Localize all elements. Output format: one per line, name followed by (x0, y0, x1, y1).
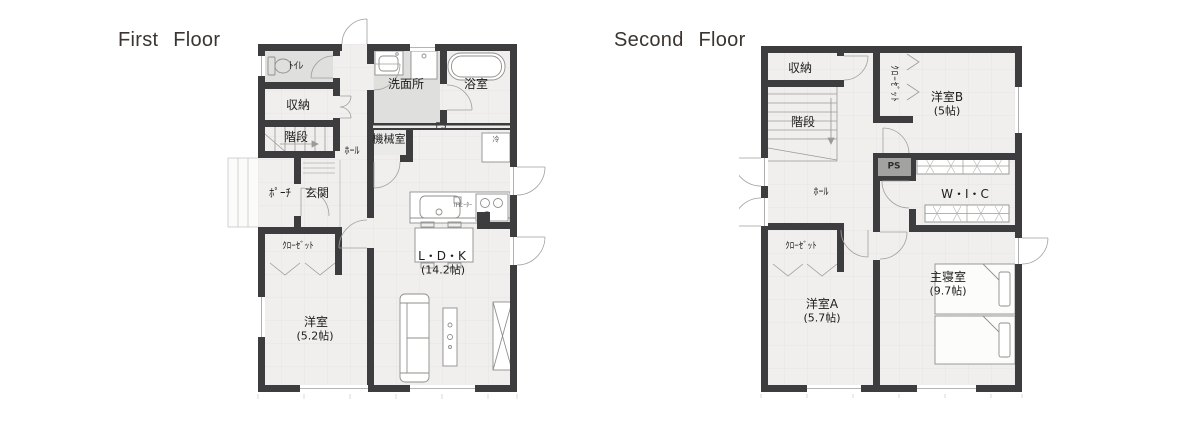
label-refrigerator: 冷 (493, 137, 500, 144)
second-floor-title: Second Floor (614, 29, 746, 52)
wic-hanger-rack-bottom (925, 205, 1009, 222)
room-label-toilet: ﾄｲﾚ (289, 62, 304, 72)
sofa (400, 294, 429, 382)
room-label-storage-1f: 収納 (286, 99, 310, 111)
casement-window-arc-left-2 (739, 198, 761, 226)
room-size-master-bedroom: (9.7帖) (929, 286, 966, 297)
floor-plan-canvas: First Floor Second Floor ﾄｲﾚ 収納 階段 ﾎｰﾙ 機… (0, 0, 1200, 432)
room-label-hall-1f: ﾎｰﾙ (345, 147, 360, 157)
room-label-machine-room: 機械室 (373, 134, 406, 145)
first-floor-title: First Floor (118, 29, 220, 52)
room-label-western-a: 洋室A (806, 298, 838, 310)
second-floor-plan (739, 18, 1063, 398)
room-label-ldk: L・D・K (418, 250, 466, 262)
room-size-western-a: (5.7帖) (803, 313, 840, 324)
bathtub-fixture (448, 53, 505, 80)
casement-window-arc-2 (517, 237, 545, 265)
room-label-wic: W・I・C (941, 188, 989, 200)
room-size-ldk: (14.2帖) (421, 265, 465, 276)
module-ticks (761, 394, 1022, 398)
wic-hanger-rack-top (917, 158, 1009, 174)
label-ps-1f: PS (435, 123, 446, 132)
room-label-entrance: 玄関 (305, 187, 329, 199)
room-label-storage-2f: 収納 (788, 62, 812, 74)
room-label-hall-2f: ﾎｰﾙ (814, 188, 829, 198)
front-door-arc (342, 19, 367, 44)
tv-board (443, 308, 457, 366)
label-ih-heater: IHﾋｰﾀｰ (454, 203, 472, 209)
room-label-closet-a: ｸﾛｰｾﾞｯﾄ (785, 243, 817, 252)
room-label-porch: ﾎﾟｰﾁ (269, 188, 291, 199)
room-label-stairs-1f: 階段 (284, 131, 308, 143)
room-label-washroom: 洗面所 (388, 78, 424, 90)
room-label-closet-1f: ｸﾛｰｾﾞｯﾄ (282, 243, 314, 252)
room-label-master-bedroom: 主寝室 (930, 271, 966, 283)
storage-shelf (493, 302, 512, 370)
bed-2 (935, 316, 1015, 364)
room-label-bathroom: 浴室 (464, 78, 488, 90)
washing-machine-pan (411, 51, 437, 79)
casement-window-arc-right (1022, 238, 1048, 264)
first-floor-plan (226, 16, 550, 400)
casement-window-arc-left-1 (739, 158, 761, 186)
room-label-western-b: 洋室B (931, 91, 963, 103)
module-ticks (258, 394, 517, 399)
casement-window-arc-1 (517, 167, 545, 195)
room-label-western-room-1f: 洋室 (304, 316, 328, 328)
room-label-stairs-2f: 階段 (791, 116, 815, 128)
room-label-closet-b: ｸﾛｰｾﾞｯﾄ (889, 65, 898, 103)
label-ps-2f: PS (887, 163, 900, 172)
room-size-western-b: (5帖) (934, 106, 961, 117)
room-size-western-room-1f: (5.2帖) (296, 331, 333, 342)
